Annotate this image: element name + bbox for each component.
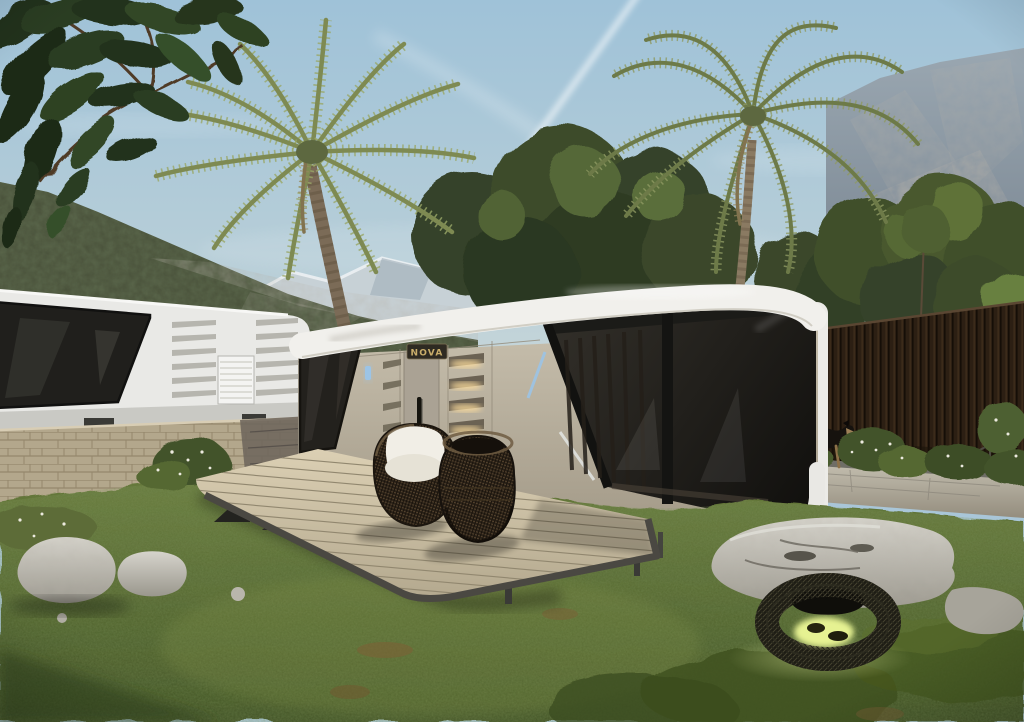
vignette	[0, 0, 1024, 722]
render-viewport: NOVA	[0, 0, 1024, 722]
scene-render: NOVA	[0, 0, 1024, 722]
